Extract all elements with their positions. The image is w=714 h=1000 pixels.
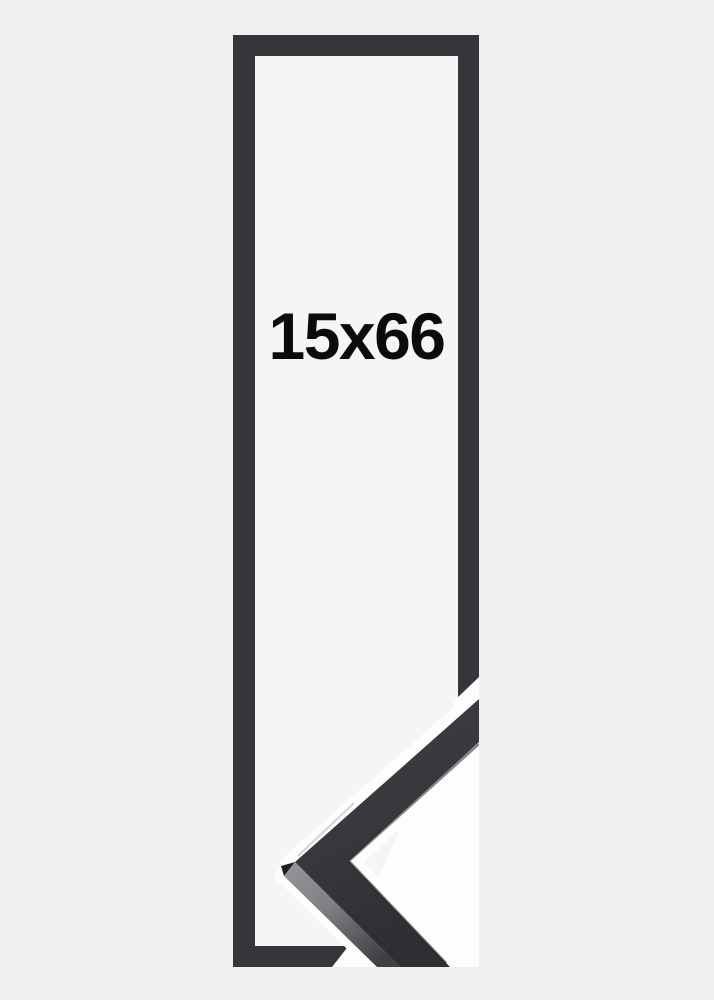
size-label: 15x66 [255, 303, 458, 369]
frame-photo [0, 0, 714, 1000]
product-image-frame-15x66: 15x66 [0, 0, 714, 1000]
